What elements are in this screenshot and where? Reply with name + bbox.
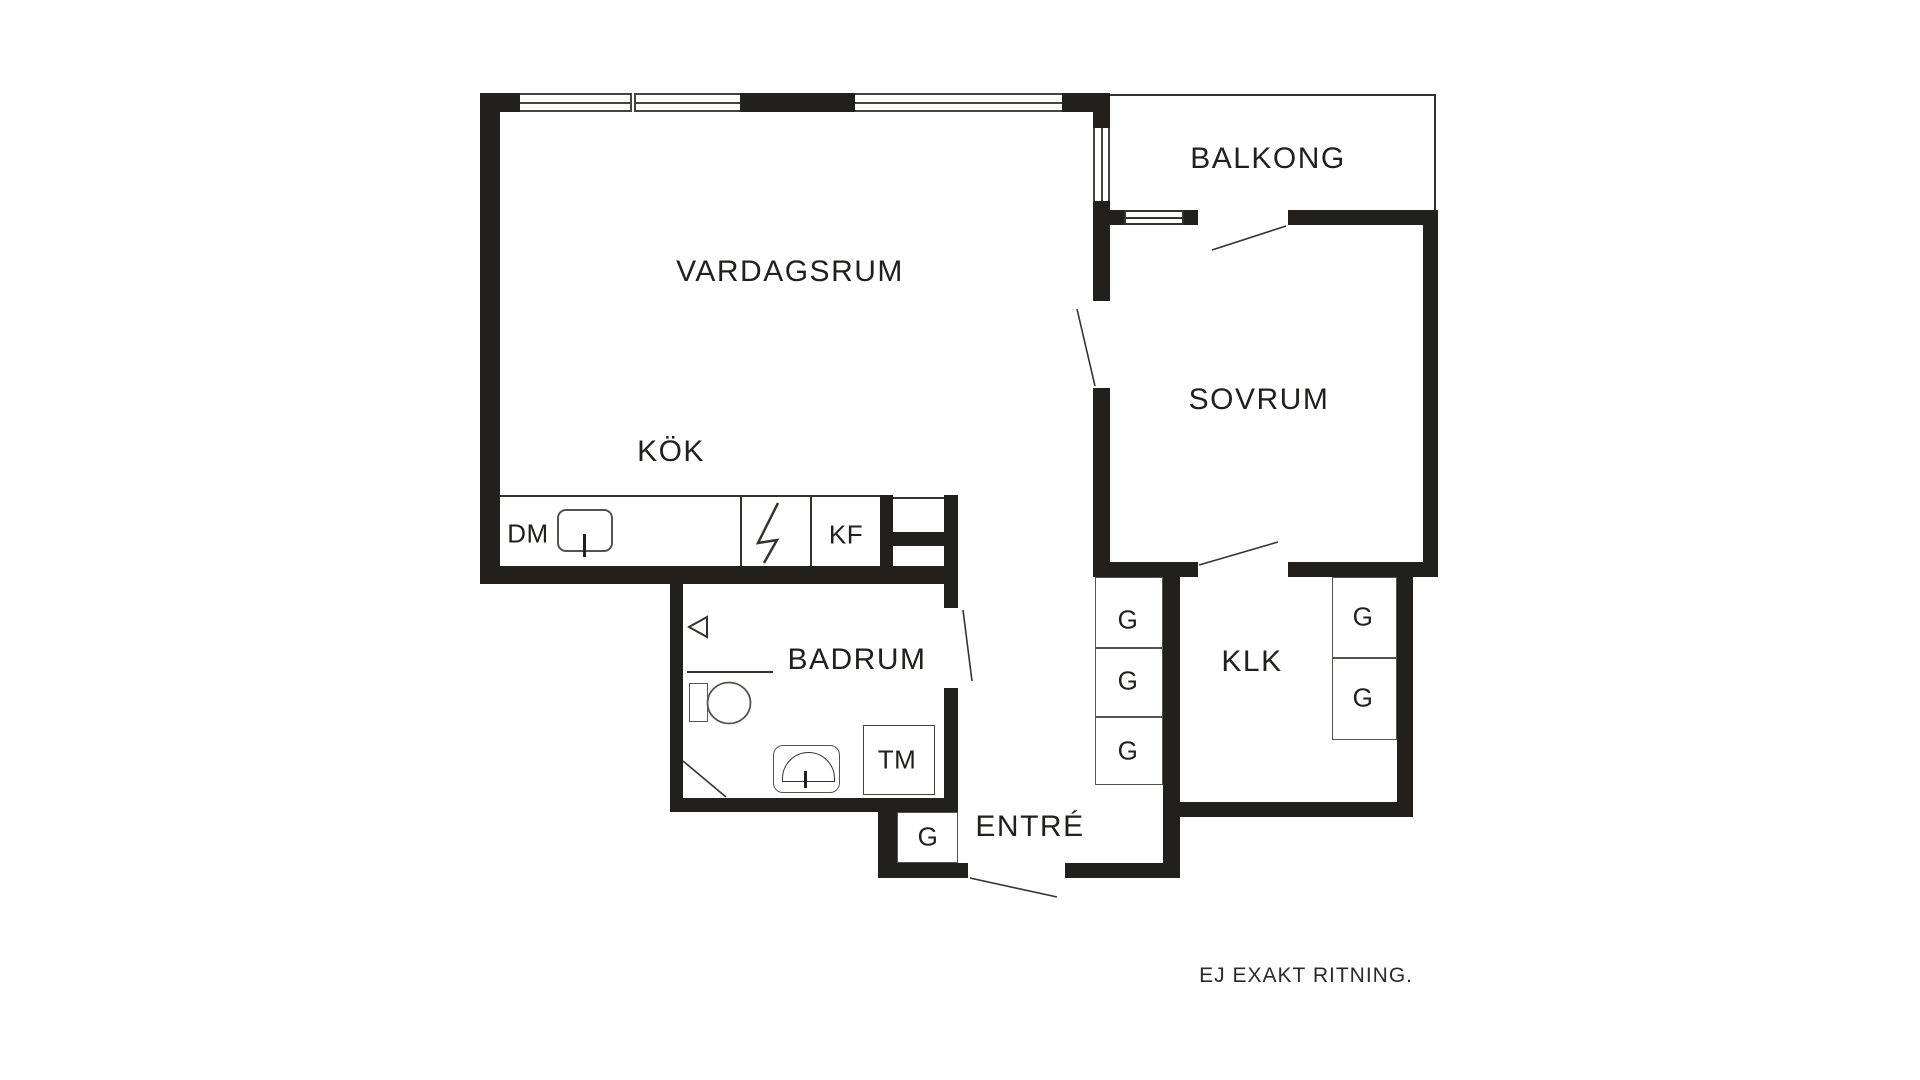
wall-balcony-bedroom-a — [1110, 210, 1124, 225]
wall-livingroom-bedroom-lower — [1093, 388, 1110, 577]
wall-shaft-bar — [893, 532, 944, 546]
wall-shaft-vertical — [944, 495, 958, 608]
door-swing-entrance — [970, 878, 1057, 897]
wall-balcony-bedroom-c — [1288, 210, 1438, 225]
wardrobe-label: G — [1118, 666, 1139, 697]
wall-kitchen-right — [880, 495, 893, 566]
wall-top-middle — [740, 93, 855, 112]
door-swing-livingroom — [1077, 309, 1095, 386]
room-label-kitchen: KÖK — [637, 435, 705, 469]
room-label-bathroom: BADRUM — [787, 643, 926, 677]
wall-livingroom-bedroom-upper — [1093, 201, 1110, 301]
wall-klk-bottom — [1177, 802, 1413, 817]
disclaimer-text: EJ EXAKT RITNING. — [1199, 964, 1413, 988]
wall-bathroom-bottom — [670, 798, 958, 812]
room-label-entrance: ENTRÉ — [975, 810, 1084, 844]
floor-plan: VARDAGSRUM BALKONG SOVRUM KÖK BADRUM KLK… — [0, 0, 1920, 1080]
wardrobe-label: G — [1118, 736, 1139, 767]
balcony-outline-right — [1434, 94, 1436, 211]
shaft-top-edge — [893, 497, 944, 499]
wall-bathroom-right-lower — [944, 688, 958, 812]
wardrobe-label: G — [918, 822, 939, 853]
wall-top-corner-right — [1062, 93, 1110, 112]
wall-bedroom-bottom-right — [1288, 562, 1438, 577]
room-label-bedroom: SOVRUM — [1189, 383, 1330, 417]
door-swing-bathroom — [963, 610, 972, 681]
appliance-label-washing-machine: TM — [878, 745, 917, 776]
toilet-tank — [689, 683, 708, 722]
room-label-living-room: VARDAGSRUM — [676, 255, 904, 289]
kitchen-counter-divider-stove — [740, 495, 742, 566]
appliance-label-dishwasher: DM — [507, 519, 548, 550]
wall-exterior-left — [480, 93, 500, 584]
kitchen-sink-tap — [583, 534, 586, 557]
wardrobe-label: G — [1353, 683, 1374, 714]
wall-balcony-bedroom-b — [1184, 210, 1198, 225]
kitchen-counter-divider-fridge — [810, 495, 812, 566]
wall-klk-right — [1397, 577, 1413, 817]
kitchen-counter-edge — [500, 495, 880, 497]
wall-bedroom-bottom-left — [1095, 562, 1198, 577]
window-livingroom-right — [855, 93, 1062, 112]
window-bedroom-balcony — [1124, 210, 1184, 225]
room-label-balcony: BALKONG — [1190, 142, 1346, 176]
bathroom-shelf-line — [687, 671, 773, 673]
door-swing-bedroom — [1199, 542, 1278, 565]
wall-klk-left — [1163, 577, 1180, 878]
stove-icon — [758, 503, 778, 563]
wall-corner-right-vertical — [1093, 112, 1110, 128]
balcony-outline-top — [1110, 94, 1436, 96]
wall-bedroom-right — [1423, 225, 1438, 577]
plan-symbols — [0, 0, 1920, 1080]
wall-entry-closet-stub — [878, 812, 897, 863]
room-label-closet: KLK — [1221, 645, 1282, 679]
wall-bathroom-left — [670, 584, 683, 812]
window-livingroom-left — [520, 93, 630, 112]
shower-corner-line — [683, 761, 726, 797]
wall-entry-bottom-right — [1065, 863, 1177, 878]
vent-icon — [689, 617, 707, 637]
wall-top-corner-left — [480, 93, 520, 112]
washbasin-tap — [804, 771, 807, 788]
door-swing-balcony — [1212, 226, 1286, 250]
window-livingroom-balcony — [1093, 128, 1110, 201]
wardrobe-label: G — [1118, 605, 1139, 636]
wardrobe-label: G — [1353, 602, 1374, 633]
appliance-label-fridge-freezer: KF — [829, 520, 863, 551]
window-livingroom-mid — [636, 93, 740, 112]
wall-kitchen-bottom — [480, 566, 958, 584]
toilet-icon — [708, 683, 751, 724]
wall-entry-bottom-left — [878, 863, 968, 878]
